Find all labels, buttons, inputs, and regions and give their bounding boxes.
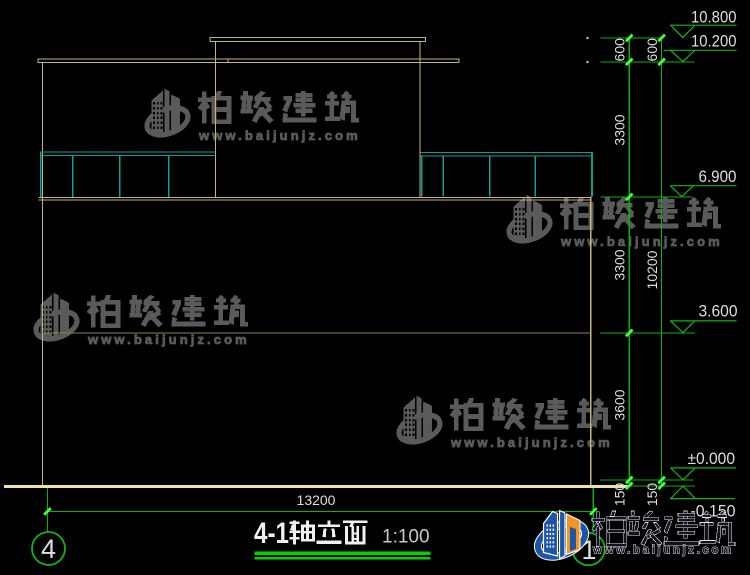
svg-text:3.600: 3.600 <box>699 302 738 320</box>
svg-text:10.800: 10.800 <box>691 8 737 26</box>
svg-text:4: 4 <box>41 534 56 564</box>
svg-text:600: 600 <box>644 38 660 62</box>
svg-text:4-1: 4-1 <box>254 517 289 550</box>
svg-text:3600: 3600 <box>612 389 628 420</box>
svg-text:www.baijunjz.com: www.baijunjz.com <box>592 545 734 557</box>
svg-text:-0.150: -0.150 <box>691 503 736 521</box>
svg-text:3300: 3300 <box>612 249 628 280</box>
svg-text:6.900: 6.900 <box>699 168 737 186</box>
svg-text:150: 150 <box>644 483 660 507</box>
svg-text:±0.000: ±0.000 <box>688 450 736 468</box>
svg-text:10200: 10200 <box>644 250 660 289</box>
svg-text:600: 600 <box>612 38 628 62</box>
svg-text:10.200: 10.200 <box>691 33 737 51</box>
svg-text:1:100: 1:100 <box>382 527 430 548</box>
svg-text:3300: 3300 <box>612 114 628 145</box>
svg-text:13200: 13200 <box>297 492 336 508</box>
svg-text:150: 150 <box>612 483 628 507</box>
